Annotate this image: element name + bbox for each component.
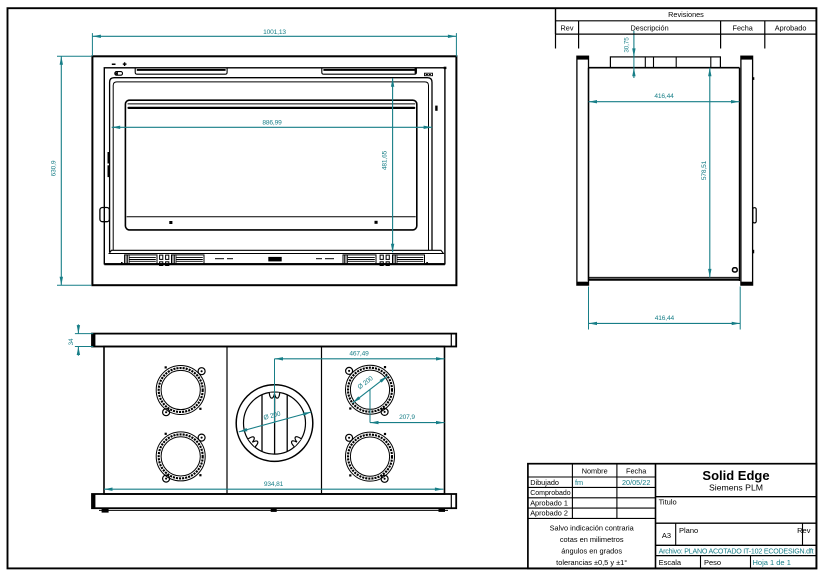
- svg-text:Fecha: Fecha: [733, 23, 754, 32]
- svg-text:207,9: 207,9: [399, 414, 415, 421]
- svg-text:Dibujado: Dibujado: [530, 478, 559, 487]
- svg-text:Hoja 1 de 1: Hoja 1 de 1: [753, 558, 791, 567]
- svg-text:Archivo: PLANO ACOTADO IT-102: Archivo: PLANO ACOTADO IT-102 ECODESIGN.…: [659, 547, 814, 555]
- svg-text:416,44: 416,44: [655, 315, 675, 322]
- svg-text:tolerancias ±0,5 y ±1°: tolerancias ±0,5 y ±1°: [556, 558, 627, 567]
- svg-text:630,9: 630,9: [51, 160, 58, 176]
- svg-text:Rev: Rev: [561, 23, 574, 32]
- svg-text:Salvo indicación contraria: Salvo indicación contraria: [550, 524, 635, 533]
- svg-text:934,81: 934,81: [264, 481, 284, 488]
- svg-text:578,51: 578,51: [701, 160, 708, 180]
- svg-text:Titulo: Titulo: [659, 498, 677, 507]
- svg-text:886,99: 886,99: [262, 119, 282, 126]
- svg-text:416,44: 416,44: [654, 93, 674, 100]
- svg-text:ángulos en grados: ángulos en grados: [561, 547, 622, 556]
- svg-text:A3: A3: [662, 531, 671, 540]
- svg-text:Peso: Peso: [704, 558, 721, 567]
- svg-text:Comprobado: Comprobado: [530, 490, 571, 497]
- svg-text:Fecha: Fecha: [626, 466, 647, 475]
- svg-text:1001,13: 1001,13: [263, 29, 286, 36]
- svg-text:Plano: Plano: [679, 526, 698, 535]
- svg-text:34: 34: [68, 338, 75, 345]
- svg-text:Descripción: Descripción: [631, 23, 669, 32]
- svg-text:Nombre: Nombre: [582, 466, 608, 475]
- svg-text:Revisiones: Revisiones: [668, 10, 704, 19]
- svg-text:Ø 200: Ø 200: [357, 375, 375, 391]
- svg-text:30,75: 30,75: [624, 37, 631, 53]
- svg-text:Escala: Escala: [659, 558, 682, 567]
- svg-text:Solid Edge: Solid Edge: [702, 468, 769, 483]
- svg-text:20/05/22: 20/05/22: [622, 478, 650, 487]
- svg-text:fm: fm: [575, 478, 583, 487]
- svg-text:Aprobado: Aprobado: [775, 23, 807, 32]
- svg-text:467,49: 467,49: [349, 350, 369, 357]
- svg-text:Aprobado 1: Aprobado 1: [530, 498, 568, 507]
- svg-text:Siemens PLM: Siemens PLM: [709, 483, 763, 493]
- svg-text:Rev: Rev: [797, 526, 811, 535]
- svg-text:481,65: 481,65: [382, 150, 389, 170]
- svg-text:Ø 200: Ø 200: [263, 410, 282, 421]
- svg-text:Aprobado 2: Aprobado 2: [530, 509, 568, 518]
- svg-text:cotas en milimetros: cotas en milimetros: [560, 535, 624, 544]
